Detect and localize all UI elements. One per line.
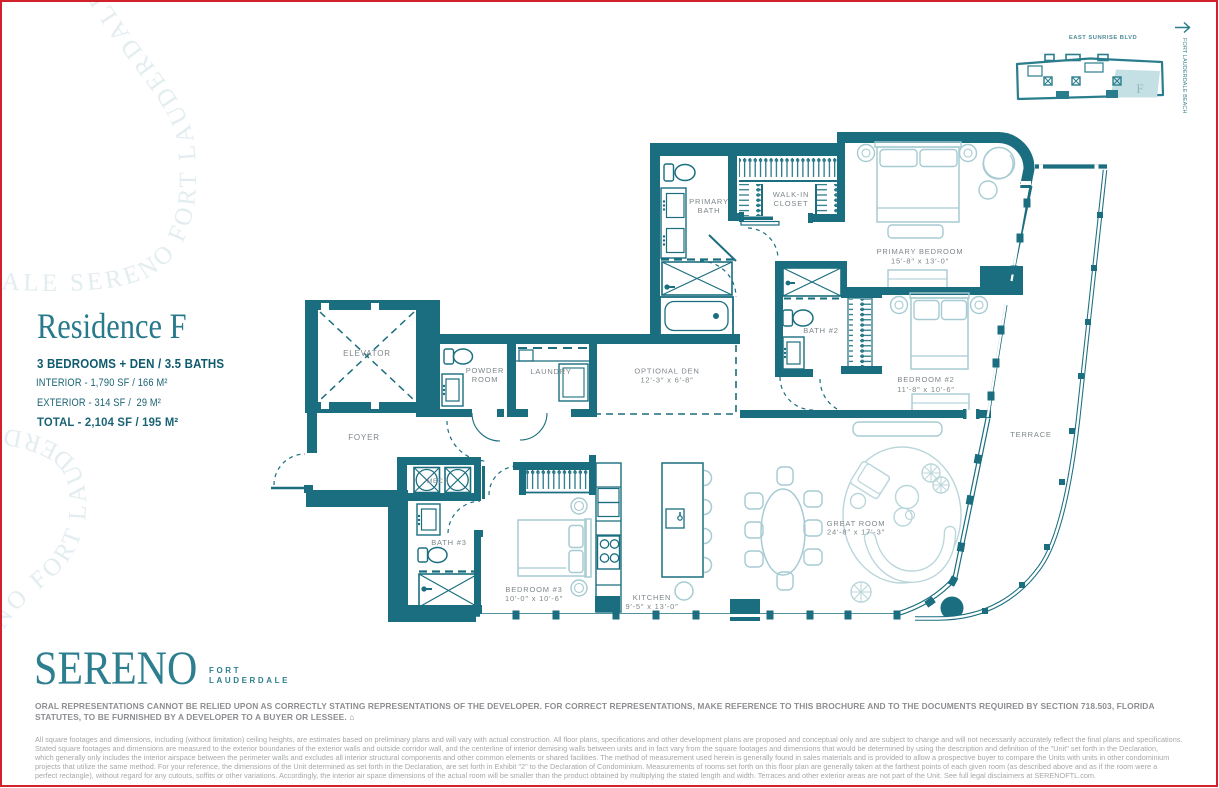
svg-text:FOYER: FOYER: [348, 433, 380, 442]
svg-text:BATH: BATH: [698, 206, 721, 215]
svg-text:TERRACE: TERRACE: [1010, 430, 1051, 439]
svg-text:PRIMARY: PRIMARY: [689, 197, 729, 206]
svg-text:PRIMARY BEDROOM: PRIMARY BEDROOM: [877, 247, 964, 256]
svg-text:FORT LAUDERDALE BEACH: FORT LAUDERDALE BEACH: [1181, 38, 1187, 114]
svg-text:WALK-IN: WALK-IN: [773, 190, 810, 199]
svg-text:10′-0″ x 10′-6″: 10′-0″ x 10′-6″: [505, 594, 563, 603]
svg-text:BATH #2: BATH #2: [803, 326, 838, 335]
svg-text:EAST SUNRISE BLVD: EAST SUNRISE BLVD: [1069, 35, 1137, 41]
svg-text:CLOSET: CLOSET: [774, 199, 809, 208]
svg-text:12′-3″ x 6′-8″: 12′-3″ x 6′-8″: [640, 376, 693, 385]
svg-text:9′-5″ x 13′-0″: 9′-5″ x 13′-0″: [625, 602, 678, 611]
svg-text:ROOM: ROOM: [472, 375, 499, 384]
svg-text:MECH: MECH: [427, 478, 449, 485]
svg-text:OPTIONAL DEN: OPTIONAL DEN: [634, 367, 699, 376]
svg-text:POWDER: POWDER: [466, 366, 505, 375]
svg-text:BEDROOM #3: BEDROOM #3: [505, 585, 562, 594]
svg-text:24′-8″ x 17′-3″: 24′-8″ x 17′-3″: [827, 528, 885, 537]
svg-text:ELEVATOR: ELEVATOR: [343, 349, 391, 358]
svg-text:F: F: [1136, 81, 1143, 96]
svg-text:LAUNDRY: LAUNDRY: [530, 367, 571, 376]
svg-text:BATH #3: BATH #3: [431, 538, 466, 547]
svg-text:KITCHEN: KITCHEN: [633, 593, 672, 602]
svg-text:11′-8″ x 10′-6″: 11′-8″ x 10′-6″: [897, 385, 955, 394]
svg-text:BEDROOM #2: BEDROOM #2: [897, 375, 954, 384]
svg-text:15′-8″ x 13′-0″: 15′-8″ x 13′-0″: [891, 257, 949, 266]
